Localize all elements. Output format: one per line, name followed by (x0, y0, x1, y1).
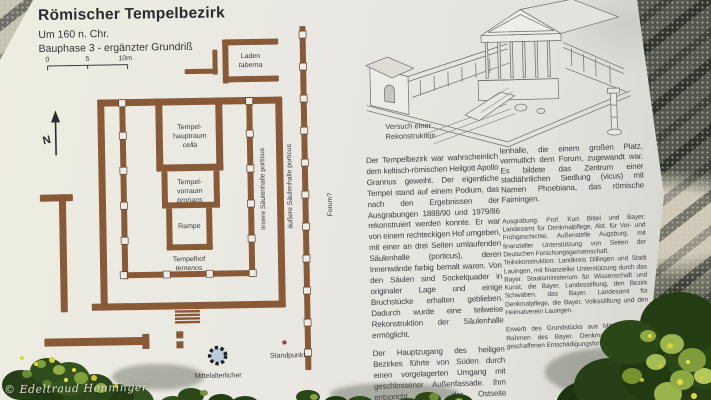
bush-middle (296, 390, 320, 400)
yellow-flowers-right (648, 334, 652, 338)
paragraph-entrance-continued: lenhalle, die einem großen Platz, vermut… (500, 142, 645, 206)
bush-left (30, 358, 64, 384)
bush-middle (415, 392, 441, 400)
photographer-watermark: © Edeltraud Henninger (4, 381, 148, 397)
photo-of-information-sign: Römischer Tempelbezirk Um 160 n. Chr. Ba… (0, 0, 711, 400)
paragraph-history: Der Tempelbezirk war wahrscheinlich dem … (366, 152, 504, 342)
text-column-1: Der Tempelbezirk war wahrscheinlich dem … (366, 152, 507, 400)
credits-reconstruction: Teilrekonstruktion: Landkreis Dillingen … (504, 255, 649, 318)
credits-excavation: Ausgrabung: Prof. Kurt Bittel und Bayer.… (502, 213, 646, 259)
bush-right (600, 320, 660, 364)
bush-left-highlights (36, 360, 46, 368)
yellow-flowers-left (20, 356, 24, 360)
bush-middle-highlights (200, 390, 208, 396)
